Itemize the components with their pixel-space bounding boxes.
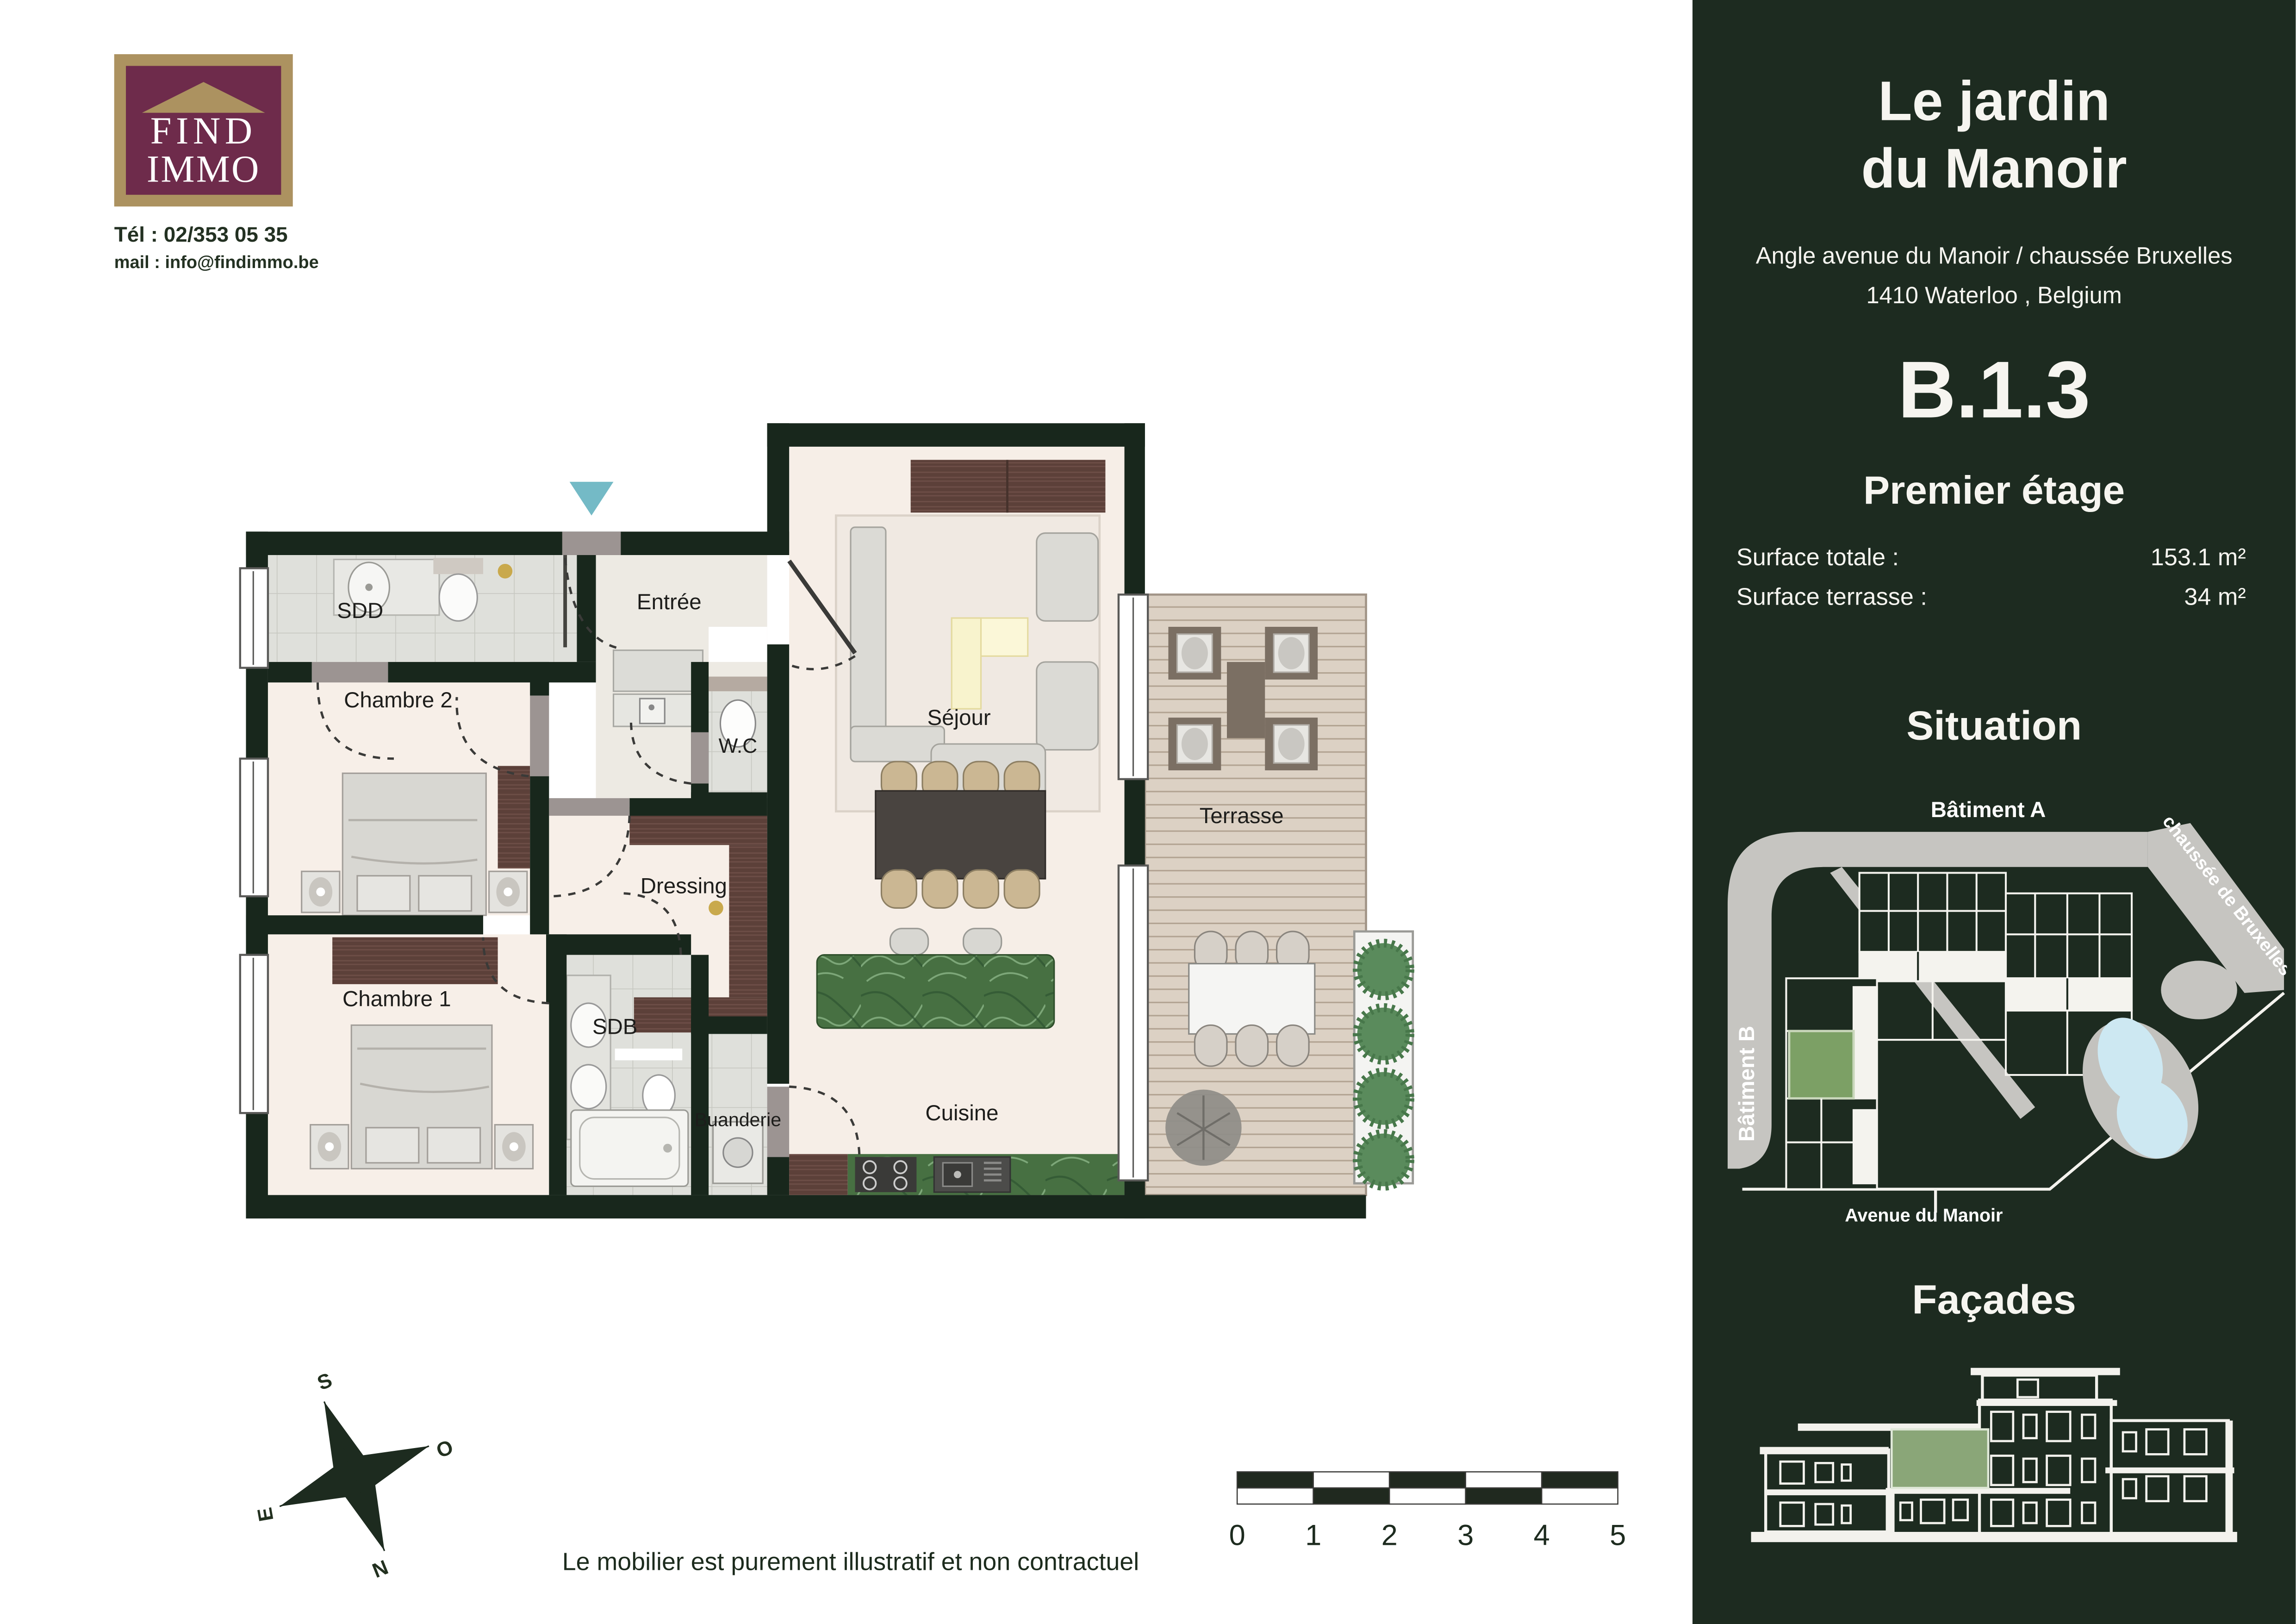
project-title: Le jardin du Manoir — [1692, 70, 2296, 204]
sofa — [851, 527, 886, 759]
plant-icon — [1357, 1007, 1410, 1060]
bar-stool — [890, 929, 928, 955]
kitchen-island — [817, 955, 1054, 1028]
surface-terrace-label: Surface terrasse : — [1736, 584, 1927, 612]
facade-highlighted-unit — [1892, 1430, 1988, 1488]
situation-title: Situation — [1692, 703, 2296, 750]
map-label-batiment-b: Bâtiment B — [1735, 1026, 1759, 1142]
room-label-terrasse: Terrasse — [1200, 804, 1284, 828]
facades-title: Façades — [1692, 1277, 2296, 1324]
brochure-page: SDD Entrée Chambre 2 W.C Séjour Terrasse… — [0, 0, 2296, 1624]
armchair — [1037, 662, 1098, 750]
surface-total-value: 153.1 m² — [2151, 545, 2246, 573]
outdoor-chair — [1236, 1025, 1268, 1066]
wc-door — [691, 732, 709, 784]
compass-s: S — [314, 1368, 336, 1394]
compass-rose: S O E N — [249, 1368, 459, 1582]
situation-map: Bâtiment A Bâtiment B chaussée de Bruxel… — [1701, 759, 2287, 1242]
address-line1: Angle avenue du Manoir / chaussée Bruxel… — [1692, 237, 2296, 277]
surface-terrace-value: 34 m² — [2184, 584, 2246, 612]
info-panel: Le jardin du Manoir Angle avenue du Mano… — [1692, 0, 2296, 1624]
scale-2: 2 — [1381, 1519, 1398, 1551]
scale-0: 0 — [1229, 1519, 1245, 1551]
light-dot — [709, 901, 723, 916]
chambre2-door — [530, 696, 549, 776]
findimmo-logo: FIND IMMO — [114, 54, 293, 206]
map-highlighted-unit — [1789, 1031, 1854, 1099]
unit-code: B.1.3 — [1692, 343, 2296, 436]
room-label-cuisine: Cuisine — [925, 1101, 998, 1125]
room-label-chambre2: Chambre 2 — [344, 688, 453, 712]
coffee-table — [1227, 662, 1265, 738]
room-label-sdd: SDD — [337, 599, 383, 623]
wc-shelf — [709, 677, 767, 692]
surface-terrace-row: Surface terrasse : 34 m² — [1736, 584, 2246, 612]
floor-lamp-arm — [952, 618, 981, 709]
sdd-door — [312, 662, 388, 682]
scale-1: 1 — [1305, 1519, 1321, 1551]
plant-icon — [1357, 943, 1410, 996]
room-label-sdb: SDB — [592, 1014, 638, 1039]
sdb-shelf — [615, 1049, 683, 1060]
desk — [332, 937, 498, 984]
plant-icon — [1357, 1134, 1410, 1187]
map-label-avenue: Avenue du Manoir — [1845, 1205, 2003, 1225]
scale-bar: 0 1 2 3 4 5 — [1229, 1472, 1626, 1551]
logo-background: FIND IMMO — [126, 66, 281, 194]
room-label-chambre1: Chambre 1 — [342, 987, 451, 1011]
surface-total-row: Surface totale : 153.1 m² — [1736, 545, 2246, 573]
compass-o: O — [433, 1436, 456, 1462]
outdoor-chair — [1195, 1025, 1227, 1066]
facade-drawing — [1745, 1342, 2243, 1562]
facade-building — [1760, 1368, 2234, 1535]
sdd-toilet — [439, 574, 477, 621]
sofa-chaise — [851, 726, 944, 762]
outdoor-chair — [1277, 1025, 1309, 1066]
light-dot — [498, 564, 513, 579]
room-label-entree: Entrée — [637, 590, 702, 614]
sdb-sink — [571, 1065, 606, 1109]
compass-n: N — [369, 1556, 392, 1582]
scale-5: 5 — [1610, 1519, 1626, 1551]
wardrobe — [498, 766, 530, 868]
dressing-door — [549, 798, 629, 816]
plant-icon — [1357, 1072, 1410, 1125]
email-address: mail : info@findimmo.be — [114, 252, 319, 272]
wardrobe — [729, 845, 767, 997]
logo-brand-line1: FIND — [126, 110, 281, 154]
entrance-marker-icon — [570, 482, 614, 516]
project-title-line1: Le jardin — [1692, 70, 2296, 137]
room-label-sejour: Séjour — [927, 706, 991, 730]
room-label-wc: W.C — [719, 735, 758, 757]
bar-stool — [964, 929, 1002, 955]
map-label-batiment-a: Bâtiment A — [1931, 798, 2046, 822]
dining-table — [876, 791, 1045, 879]
scale-4: 4 — [1534, 1519, 1550, 1551]
floor-label: Premier étage — [1692, 468, 2296, 514]
room-label-dressing: Dressing — [641, 874, 727, 899]
address-line2: 1410 Waterloo , Belgium — [1692, 277, 2296, 317]
map-pond — [2060, 1000, 2221, 1179]
armchair — [1037, 533, 1098, 621]
phone-number: Tél : 02/353 05 35 — [114, 224, 288, 248]
scale-3: 3 — [1457, 1519, 1474, 1551]
project-address: Angle avenue du Manoir / chaussée Bruxel… — [1692, 237, 2296, 317]
map-batiment-b — [1786, 978, 1877, 1189]
outdoor-table — [1189, 964, 1315, 1034]
disclaimer-text: Le mobilier est purement illustratif et … — [441, 1548, 1261, 1577]
wc-niche — [709, 627, 767, 662]
kitchen-cabinet — [789, 1154, 848, 1195]
sdd-cistern — [433, 558, 483, 574]
surface-total-label: Surface totale : — [1736, 545, 1899, 573]
entrance-door — [562, 531, 621, 555]
project-title-line2: du Manoir — [1692, 137, 2296, 204]
room-label-buanderie: Buanderie — [695, 1109, 781, 1131]
logo-brand-line2: IMMO — [126, 148, 281, 192]
compass-e: E — [253, 1506, 278, 1524]
entree-closet — [614, 650, 703, 692]
